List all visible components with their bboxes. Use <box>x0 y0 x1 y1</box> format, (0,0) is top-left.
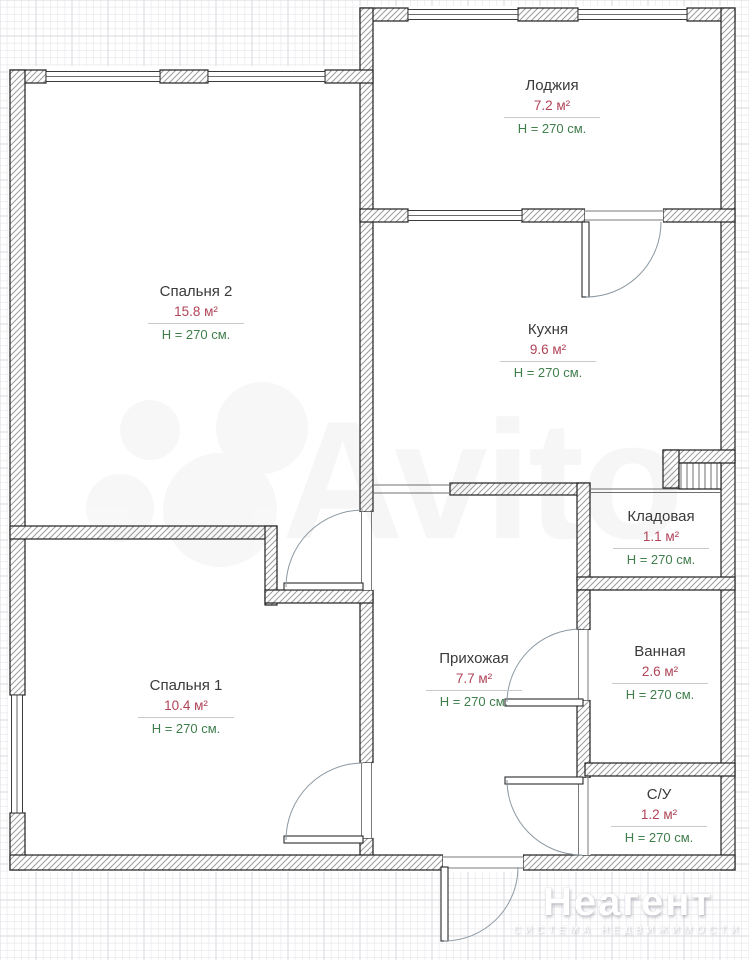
label-divider <box>426 690 522 691</box>
room-area: 2.6 м² <box>595 663 725 680</box>
ventilation-shaft <box>679 463 721 489</box>
room-label-spalnya2: Спальня 2 15.8 м² H = 270 см. <box>131 282 261 343</box>
label-divider <box>611 826 707 827</box>
room-height: H = 270 см. <box>131 326 261 343</box>
label-divider <box>500 361 596 362</box>
room-height: H = 270 см. <box>487 120 617 137</box>
room-area: 9.6 м² <box>483 341 613 358</box>
label-divider <box>138 717 234 718</box>
bedroom1-door-leaf <box>284 836 363 843</box>
room-height: H = 270 см. <box>594 829 724 846</box>
room-area: 7.2 м² <box>487 97 617 114</box>
bedroom2-door-leaf <box>284 583 363 590</box>
label-divider <box>613 548 709 549</box>
label-divider <box>612 683 708 684</box>
room-name: Прихожая <box>409 649 539 668</box>
room-name: Спальня 1 <box>121 676 251 695</box>
room-height: H = 270 см. <box>595 686 725 703</box>
room-label-kladovaya: Кладовая 1.1 м² H = 270 см. <box>596 507 726 568</box>
room-label-lodzhiya: Лоджия 7.2 м² H = 270 см. <box>487 76 617 137</box>
room-name: С/У <box>594 785 724 804</box>
label-divider <box>504 117 600 118</box>
room-area: 10.4 м² <box>121 697 251 714</box>
room-name: Лоджия <box>487 76 617 95</box>
room-label-spalnya1: Спальня 1 10.4 м² H = 270 см. <box>121 676 251 737</box>
room-name: Ванная <box>595 642 725 661</box>
room-label-su: С/У 1.2 м² H = 270 см. <box>594 785 724 846</box>
room-label-kuhnya: Кухня 9.6 м² H = 270 см. <box>483 320 613 381</box>
entrance-door-leaf <box>441 867 448 941</box>
wc-door-leaf <box>505 777 583 784</box>
room-height: H = 270 см. <box>409 693 539 710</box>
room-height: H = 270 см. <box>121 720 251 737</box>
room-area: 1.1 м² <box>596 528 726 545</box>
floor-plan-screenshot: Лоджия 7.2 м² H = 270 см. Спальня 2 15.8… <box>0 0 749 960</box>
label-divider <box>148 323 244 324</box>
room-area: 7.7 м² <box>409 670 539 687</box>
room-label-prihozhaya: Прихожая 7.7 м² H = 270 см. <box>409 649 539 710</box>
room-label-vannaya: Ванная 2.6 м² H = 270 см. <box>595 642 725 703</box>
room-name: Спальня 2 <box>131 282 261 301</box>
room-name: Кладовая <box>596 507 726 526</box>
room-area: 1.2 м² <box>594 806 724 823</box>
room-area: 15.8 м² <box>131 303 261 320</box>
room-height: H = 270 см. <box>483 364 613 381</box>
room-height: H = 270 см. <box>596 551 726 568</box>
balcony-door-leaf <box>582 222 589 297</box>
room-name: Кухня <box>483 320 613 339</box>
